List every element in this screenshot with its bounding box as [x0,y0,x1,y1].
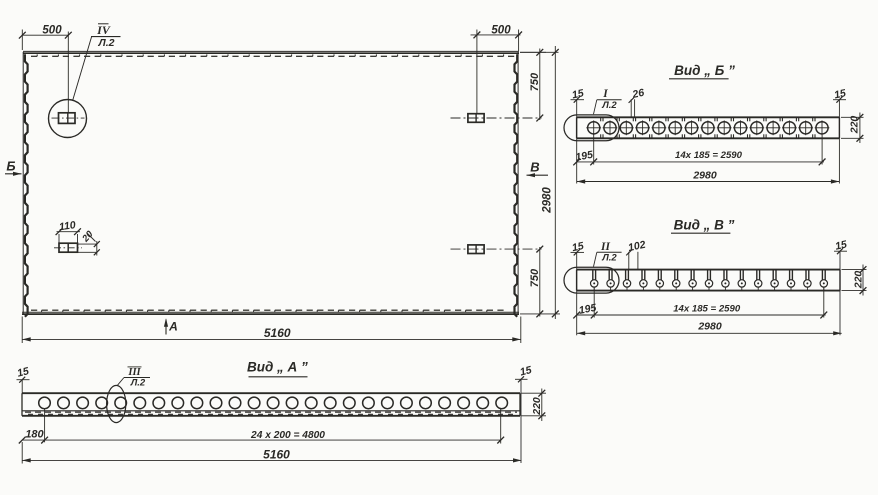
svg-text:Л.2: Л.2 [601,253,617,264]
svg-text:5160: 5160 [264,326,291,340]
svg-text:Л.2: Л.2 [98,37,115,49]
svg-text:750: 750 [529,72,541,91]
svg-text:II: II [600,241,610,253]
svg-text:220: 220 [852,271,864,290]
svg-text:500: 500 [42,25,62,37]
svg-text:Вид „ А ”: Вид „ А ” [247,359,308,374]
svg-text:14х 185 = 2590: 14х 185 = 2590 [675,150,743,161]
svg-text:2980: 2980 [692,169,717,181]
svg-text:2980: 2980 [697,321,722,333]
svg-text:15: 15 [519,364,533,379]
svg-text:Л.2: Л.2 [130,378,146,389]
svg-text:Вид „ В ”: Вид „ В ” [674,218,735,233]
svg-text:IV: IV [96,23,111,37]
svg-text:Л.2: Л.2 [601,100,617,111]
svg-text:220: 220 [848,116,860,135]
svg-text:24 х 200 = 4800: 24 х 200 = 4800 [250,430,325,441]
svg-text:Б: Б [6,159,15,174]
svg-text:14х 185 = 2590: 14х 185 = 2590 [673,304,741,315]
svg-text:110: 110 [58,219,76,233]
svg-text:III: III [127,367,141,378]
svg-text:5160: 5160 [263,448,290,462]
svg-text:195: 195 [575,149,594,164]
svg-text:Вид „ Б ”: Вид „ Б ” [674,63,735,78]
svg-text:А: А [168,320,178,334]
svg-text:750: 750 [529,268,541,287]
svg-text:2980: 2980 [542,187,554,214]
svg-text:180: 180 [25,428,44,440]
svg-text:В: В [530,160,539,175]
svg-text:500: 500 [491,25,511,37]
svg-text:15: 15 [16,365,30,380]
svg-text:220: 220 [531,397,543,416]
svg-text:I: I [602,88,608,100]
svg-text:20: 20 [80,228,96,244]
